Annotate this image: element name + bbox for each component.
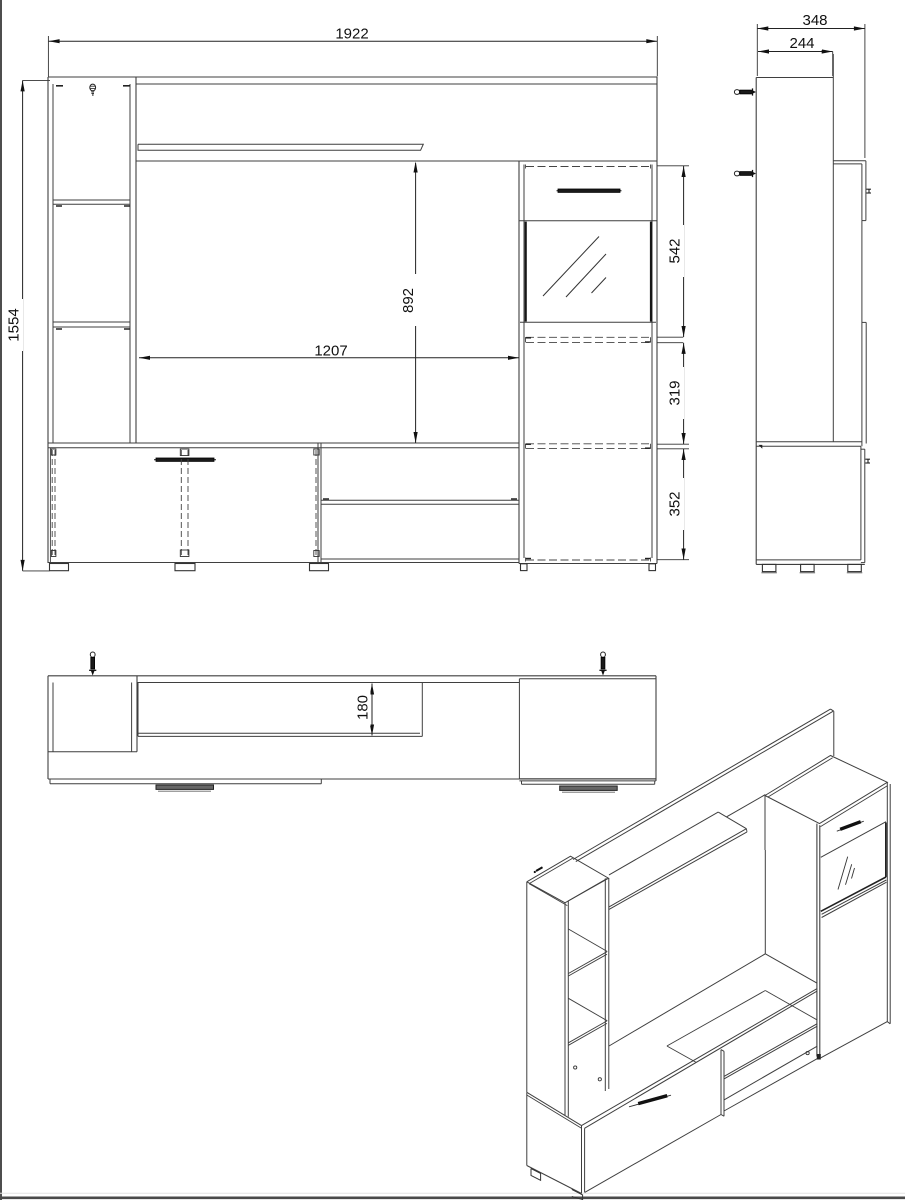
svg-text:1207: 1207: [314, 343, 347, 360]
svg-text:348: 348: [802, 12, 827, 29]
svg-text:1554: 1554: [6, 308, 23, 341]
svg-text:244: 244: [789, 35, 814, 52]
svg-text:1922: 1922: [335, 26, 368, 43]
svg-text:542: 542: [667, 238, 684, 263]
svg-text:319: 319: [667, 380, 684, 405]
svg-text:352: 352: [667, 491, 684, 516]
svg-text:180: 180: [355, 695, 372, 720]
svg-text:892: 892: [400, 288, 417, 313]
